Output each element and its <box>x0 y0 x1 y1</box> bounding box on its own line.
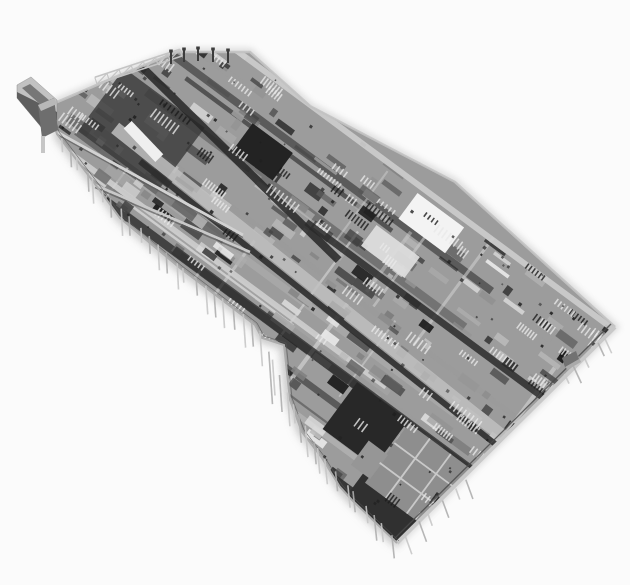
arm-support-leg <box>41 136 45 153</box>
viewport <box>0 0 630 585</box>
bim-model-3d-view <box>0 0 630 585</box>
model-render-area <box>0 0 630 585</box>
